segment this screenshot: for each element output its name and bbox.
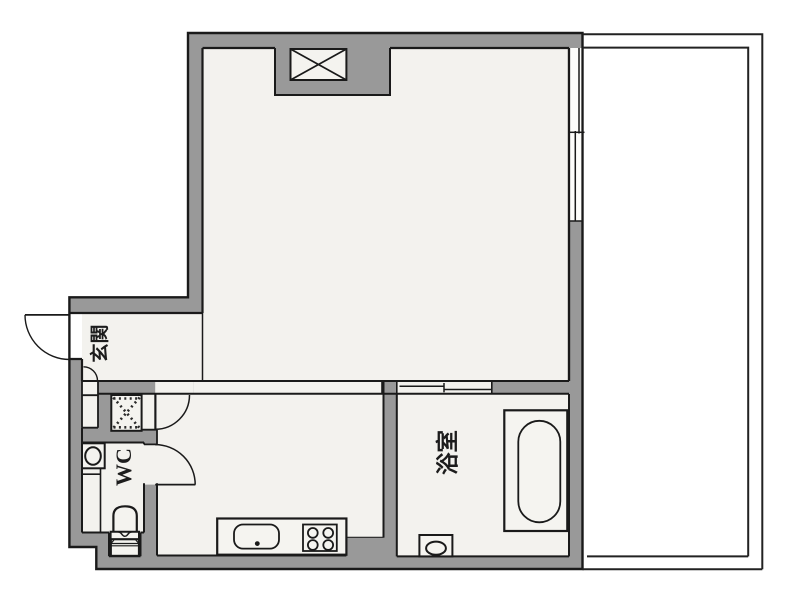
svg-text:玄関: 玄関 <box>88 324 111 362</box>
svg-text:WC: WC <box>111 448 136 486</box>
svg-text:浴室: 浴室 <box>435 430 461 475</box>
